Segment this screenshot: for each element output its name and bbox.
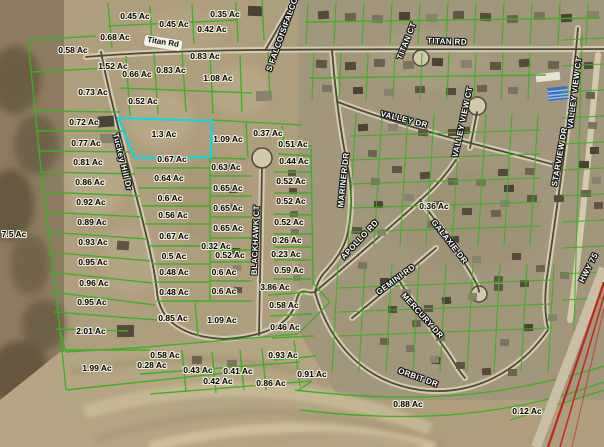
gis-map-viewport[interactable]: 0.45 Ac0.45 Ac0.35 Ac0.42 Ac0.68 Ac0.58 … xyxy=(0,0,604,447)
blue-roof-building xyxy=(547,86,568,101)
aerial-basemap xyxy=(0,0,604,447)
culdesac-blackhawk xyxy=(252,148,272,168)
